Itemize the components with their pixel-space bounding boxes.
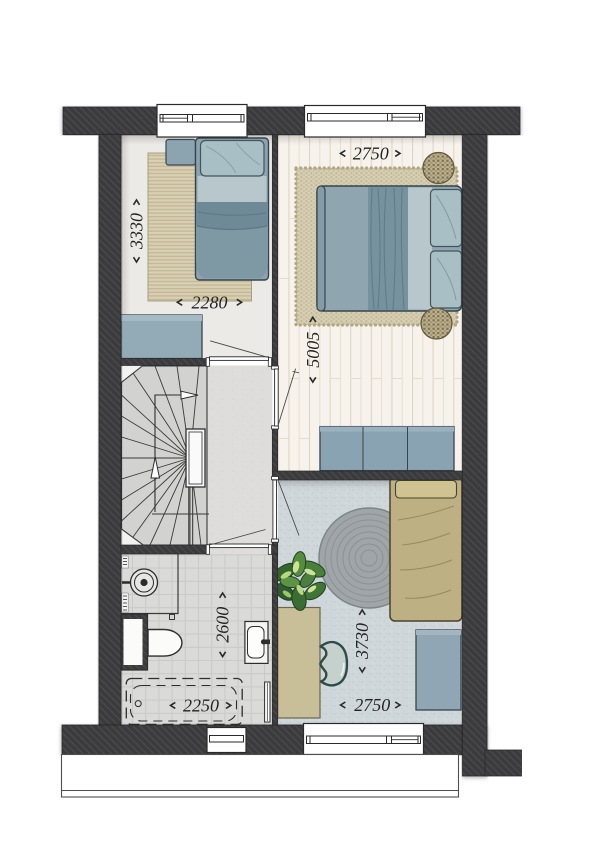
svg-text:3730: 3730 [352,623,372,660]
svg-text:2600: 2600 [213,607,233,643]
svg-text:2280: 2280 [192,293,228,313]
svg-text:2750: 2750 [353,144,389,164]
svg-text:3330: 3330 [127,213,147,250]
svg-text:5005: 5005 [303,332,323,368]
svg-text:2250: 2250 [183,696,219,716]
svg-text:2750: 2750 [354,695,390,715]
